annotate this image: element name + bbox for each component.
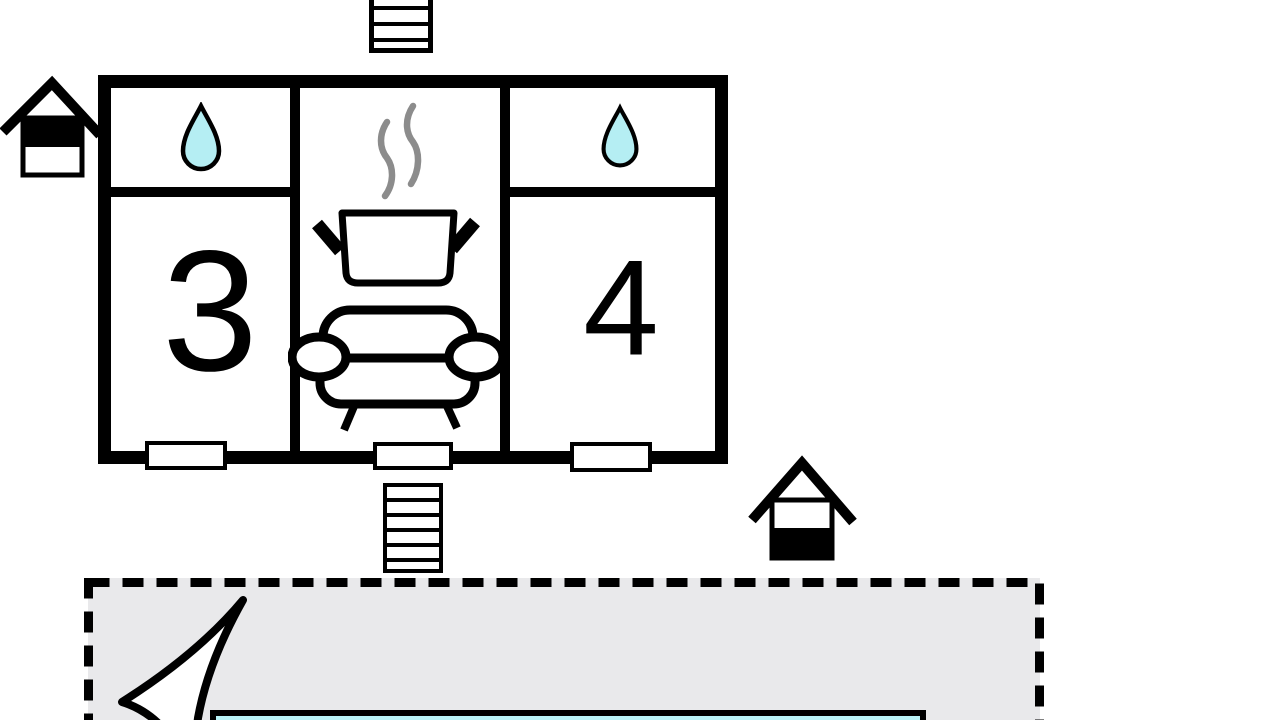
staircase-top-icon xyxy=(369,0,433,53)
door-opening-right xyxy=(570,442,652,472)
sofa-icon xyxy=(288,300,508,435)
staircase-bottom-icon xyxy=(383,483,443,573)
washbasin-water-drop-icon xyxy=(178,102,224,176)
washbasin-water-drop-icon xyxy=(599,101,641,175)
interior-wall-room4 xyxy=(509,187,715,197)
door-opening-left xyxy=(145,441,227,470)
house-floor-indicator-lower-icon xyxy=(745,455,860,565)
interior-wall-room3 xyxy=(111,187,291,197)
floorplan-canvas: 3 4 xyxy=(0,0,1280,720)
cooking-pot-icon xyxy=(310,203,482,295)
door-opening-middle xyxy=(373,442,453,470)
house-floor-indicator-upper-icon xyxy=(0,75,105,180)
entrance-arrow-icon xyxy=(100,590,250,720)
room-3-label: 3 xyxy=(162,225,258,397)
steam-icon xyxy=(370,100,430,202)
room-4-label: 4 xyxy=(583,240,659,376)
pool-icon xyxy=(210,710,926,720)
